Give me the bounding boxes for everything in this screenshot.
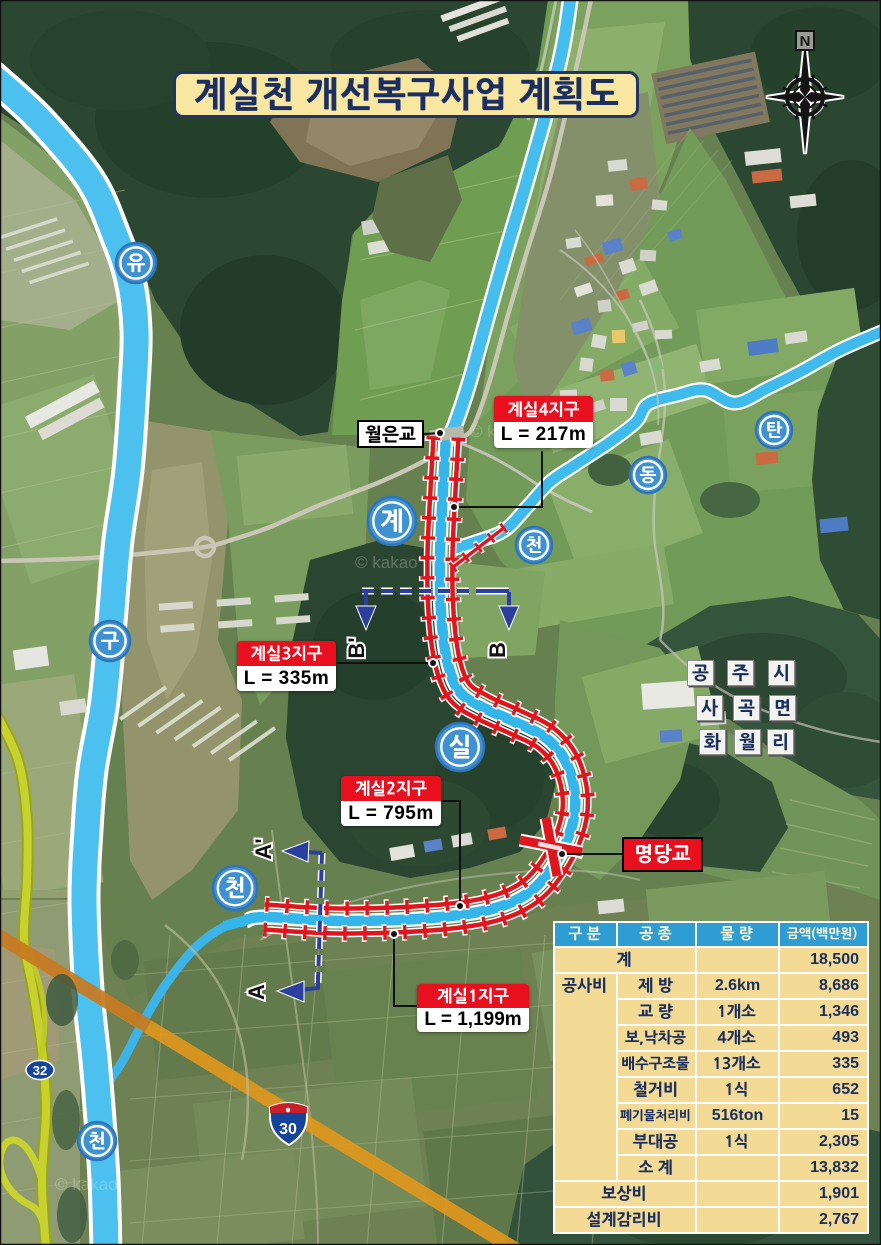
svg-text:B: B bbox=[485, 642, 510, 658]
svg-text:30: 30 bbox=[279, 1121, 297, 1138]
svg-text:B': B' bbox=[344, 637, 369, 658]
svg-text:© kakao: © kakao bbox=[55, 1175, 118, 1194]
svg-text:A': A' bbox=[251, 838, 276, 859]
svg-text:N: N bbox=[800, 33, 811, 50]
svg-text:A: A bbox=[244, 984, 269, 1000]
svg-text:32: 32 bbox=[33, 1063, 47, 1078]
svg-text:© kakao: © kakao bbox=[355, 553, 418, 572]
